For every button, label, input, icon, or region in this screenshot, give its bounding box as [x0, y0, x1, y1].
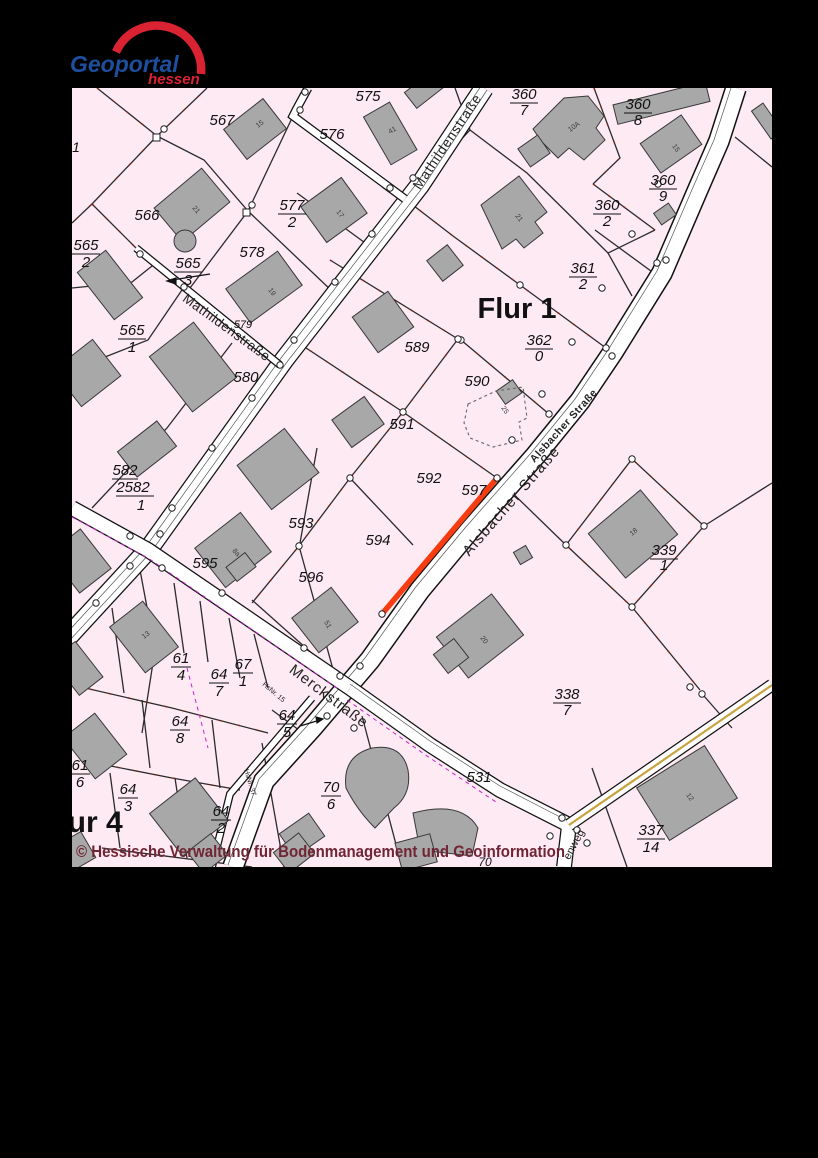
svg-text:8: 8 — [176, 730, 185, 747]
svg-text:590: 590 — [464, 373, 490, 390]
svg-text:575: 575 — [355, 88, 381, 105]
svg-text:6: 6 — [327, 796, 336, 813]
svg-text:61: 61 — [72, 757, 88, 774]
svg-text:2: 2 — [578, 276, 588, 293]
svg-text:597: 597 — [461, 482, 487, 499]
svg-text:3: 3 — [124, 798, 133, 815]
svg-text:8: 8 — [634, 112, 643, 129]
svg-text:593: 593 — [288, 515, 314, 532]
svg-text:580: 580 — [233, 369, 259, 386]
svg-text:360: 360 — [625, 96, 651, 113]
svg-text:64: 64 — [279, 707, 296, 724]
svg-text:0: 0 — [535, 348, 544, 365]
svg-text:2582: 2582 — [115, 479, 150, 496]
svg-text:61: 61 — [173, 650, 190, 667]
svg-text:14: 14 — [643, 839, 660, 856]
svg-text:531: 531 — [466, 769, 491, 786]
svg-text:2: 2 — [216, 820, 226, 837]
svg-text:592: 592 — [416, 470, 442, 487]
svg-text:7: 7 — [520, 102, 529, 119]
svg-text:596: 596 — [298, 569, 324, 586]
svg-text:362: 362 — [526, 332, 552, 349]
svg-text:338: 338 — [554, 686, 580, 703]
svg-text:565: 565 — [175, 255, 201, 272]
svg-text:70: 70 — [323, 779, 340, 796]
svg-text:3: 3 — [184, 272, 193, 289]
svg-text:565: 565 — [119, 322, 145, 339]
svg-text:1: 1 — [239, 673, 247, 690]
svg-text:64: 64 — [172, 713, 189, 730]
svg-text:595: 595 — [192, 555, 218, 572]
svg-text:360: 360 — [594, 197, 620, 214]
svg-text:9: 9 — [659, 188, 668, 205]
svg-text:6: 6 — [76, 774, 85, 791]
svg-text:7: 7 — [563, 702, 572, 719]
svg-text:67: 67 — [235, 656, 252, 673]
svg-text:Flur 4: Flur 4 — [72, 806, 123, 839]
svg-text:594: 594 — [365, 532, 390, 549]
svg-text:hessen: hessen — [148, 71, 200, 88]
svg-text:577: 577 — [279, 197, 305, 214]
svg-text:64: 64 — [120, 781, 137, 798]
svg-text:589: 589 — [404, 339, 430, 356]
svg-text:578: 578 — [239, 244, 265, 261]
svg-text:Flur 1: Flur 1 — [478, 293, 557, 325]
svg-text:1: 1 — [137, 497, 145, 514]
svg-text:2: 2 — [287, 214, 297, 231]
svg-text:565: 565 — [73, 237, 99, 254]
svg-text:576: 576 — [319, 126, 345, 143]
svg-text:1: 1 — [72, 139, 80, 155]
svg-text:360: 360 — [511, 88, 537, 103]
svg-text:64: 64 — [211, 666, 228, 683]
svg-text:582: 582 — [112, 462, 138, 479]
svg-text:7: 7 — [215, 683, 224, 700]
svg-text:566: 566 — [134, 207, 160, 224]
svg-text:© Hessische Verwaltung für Bod: © Hessische Verwaltung für Bodenmanageme… — [76, 842, 565, 861]
svg-text:591: 591 — [389, 416, 414, 433]
svg-text:2: 2 — [602, 213, 612, 230]
svg-text:2: 2 — [81, 254, 91, 271]
svg-text:337: 337 — [638, 822, 664, 839]
svg-text:1: 1 — [660, 557, 668, 574]
svg-text:361: 361 — [570, 260, 595, 277]
svg-text:4: 4 — [177, 667, 185, 684]
svg-text:1: 1 — [128, 339, 136, 356]
svg-text:5: 5 — [283, 724, 292, 741]
svg-text:360: 360 — [650, 172, 676, 189]
svg-text:64: 64 — [213, 803, 230, 820]
svg-text:567: 567 — [209, 112, 235, 129]
